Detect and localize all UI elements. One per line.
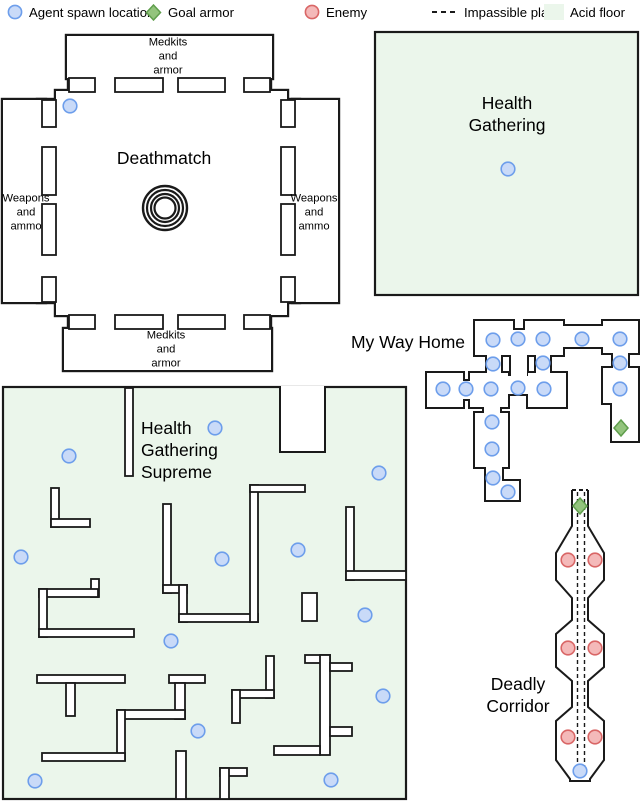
deathmatch-title: Deathmatch — [117, 147, 211, 169]
legend-item-spawn: Agent spawn location — [7, 2, 154, 22]
legend-item-goal: Goal armor — [145, 2, 234, 22]
agent-spawn-marker — [358, 608, 372, 622]
deathmatch-left-room-label: Weapons and ammo — [2, 192, 49, 235]
enemy-marker — [588, 730, 602, 744]
agent-spawn-marker — [501, 162, 515, 176]
agent-spawn-marker — [63, 99, 77, 113]
spawn-icon — [7, 4, 23, 20]
acid-icon — [544, 4, 564, 20]
deathmatch-map — [3, 36, 338, 370]
deathmatch-top-room-label: Medkits and armor — [149, 36, 188, 79]
agent-spawn-marker — [613, 356, 627, 370]
legend-label: Agent spawn location — [29, 5, 154, 20]
agent-spawn-marker — [485, 442, 499, 456]
legend-item-enemy: Enemy — [304, 2, 367, 22]
agent-spawn-marker — [613, 332, 627, 346]
health-gathering-title: Health Gathering — [469, 92, 546, 136]
agent-spawn-marker — [436, 382, 450, 396]
agent-spawn-marker — [324, 773, 338, 787]
agent-spawn-marker — [62, 449, 76, 463]
deadly-corridor-map — [556, 490, 604, 781]
health-gathering-map — [375, 32, 638, 295]
legend-label: Goal armor — [168, 5, 234, 20]
agent-spawn-marker — [573, 764, 587, 778]
enemy-icon — [304, 4, 320, 20]
enemy-marker — [588, 553, 602, 567]
agent-spawn-marker — [376, 689, 390, 703]
agent-spawn-marker — [215, 552, 229, 566]
agent-spawn-marker — [501, 485, 515, 499]
agent-spawn-marker — [537, 382, 551, 396]
deadly-corridor-title: Deadly Corridor — [486, 673, 549, 717]
agent-spawn-marker — [511, 332, 525, 346]
goal-icon — [145, 4, 162, 21]
agent-spawn-marker — [14, 550, 28, 564]
enemy-marker — [561, 553, 575, 567]
agent-spawn-marker — [372, 466, 386, 480]
enemy-marker — [561, 730, 575, 744]
dashed-icon — [432, 8, 458, 16]
environment-maps-figure: Agent spawn location Goal armor Enemy Im… — [0, 0, 640, 802]
agent-spawn-marker — [485, 415, 499, 429]
agent-spawn-marker — [613, 382, 627, 396]
enemy-marker — [588, 641, 602, 655]
agent-spawn-marker — [191, 724, 205, 738]
agent-spawn-marker — [536, 356, 550, 370]
agent-spawn-marker — [484, 382, 498, 396]
agent-spawn-marker — [164, 634, 178, 648]
agent-spawn-marker — [28, 774, 42, 788]
agent-spawn-marker — [511, 381, 525, 395]
agent-spawn-marker — [575, 332, 589, 346]
health-gathering-supreme-title: Health Gathering Supreme — [141, 417, 218, 484]
agent-spawn-marker — [459, 382, 473, 396]
legend-label: Enemy — [326, 5, 367, 20]
deathmatch-bottom-room-label: Medkits and armor — [147, 329, 186, 372]
deathmatch-right-room-label: Weapons and ammo — [290, 192, 337, 235]
legend-item-acid: Acid floor — [544, 2, 625, 22]
enemy-marker — [561, 641, 575, 655]
my-way-home-title: My Way Home — [351, 331, 465, 353]
agent-spawn-marker — [291, 543, 305, 557]
agent-spawn-marker — [536, 332, 550, 346]
legend-label: Acid floor — [570, 5, 625, 20]
agent-spawn-marker — [486, 357, 500, 371]
agent-spawn-marker — [486, 471, 500, 485]
agent-spawn-marker — [486, 333, 500, 347]
